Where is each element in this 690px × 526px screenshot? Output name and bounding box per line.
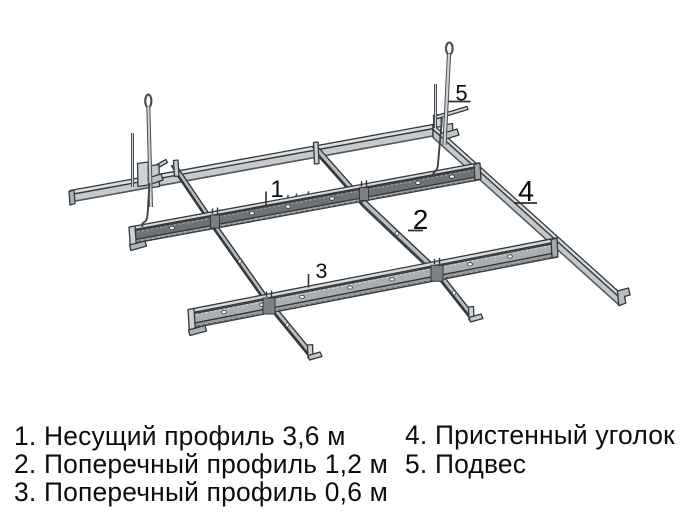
svg-text:3: 3	[316, 259, 328, 283]
svg-text:1: 1	[270, 176, 283, 203]
